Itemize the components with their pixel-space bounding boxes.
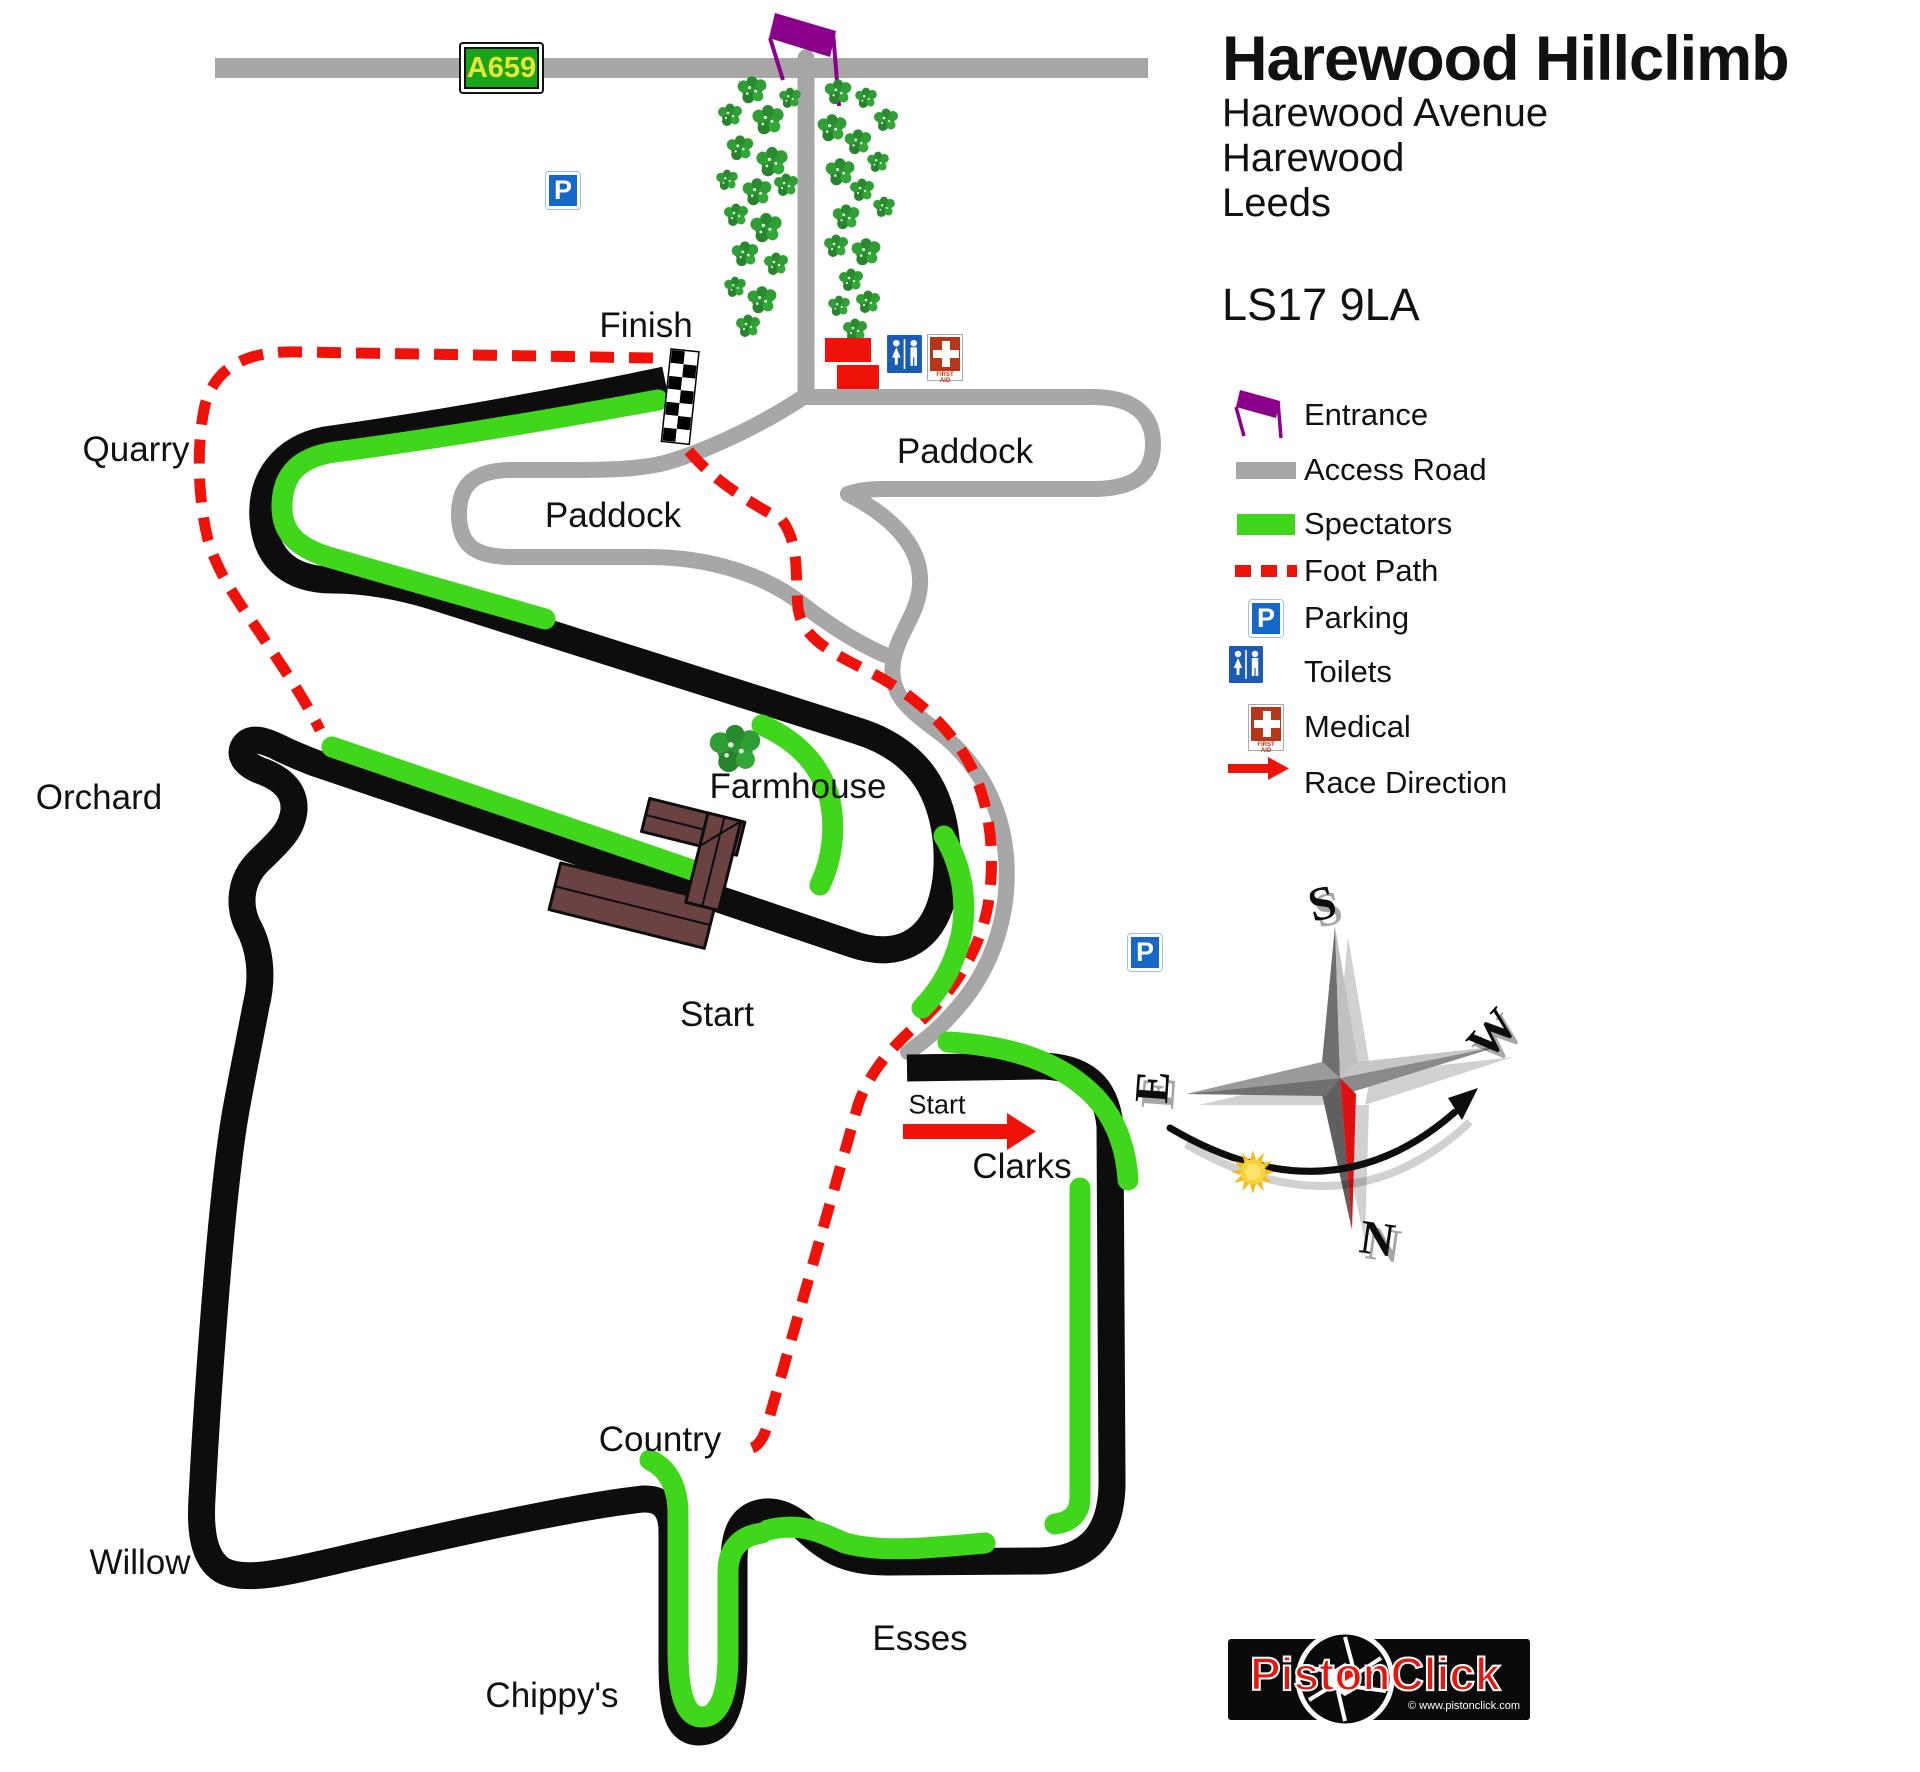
legend-item-toilets: Toilets xyxy=(1228,645,1648,699)
label-esses: Esses xyxy=(872,1619,967,1659)
foot-path-icon xyxy=(1228,565,1304,577)
legend-item-access-road: Access Road xyxy=(1228,443,1648,497)
legend-item-race-direction: Race Direction xyxy=(1228,756,1648,810)
logo-wordmark: PistonClick xyxy=(1250,1647,1501,1701)
legend-label: Toilets xyxy=(1304,654,1392,690)
logo-url: © www.pistonclick.com xyxy=(1408,1700,1520,1712)
compass-rose: S E W N S E W N xyxy=(1125,875,1534,1274)
spectators-icon xyxy=(1228,514,1304,535)
legend-item-foot-path: Foot Path xyxy=(1228,544,1648,598)
postcode: LS17 9LA xyxy=(1222,279,1789,331)
paddock-buildings xyxy=(825,338,879,389)
legend-item-spectators: Spectators xyxy=(1228,497,1648,551)
finish-line-checkered-flag xyxy=(661,349,699,444)
address-line-1: Harewood Avenue xyxy=(1222,91,1789,136)
page-title: Harewood Hillclimb xyxy=(1222,28,1789,91)
parking-icon: P xyxy=(1228,600,1304,637)
label-quarry: Quarry xyxy=(83,430,190,470)
access-road-icon xyxy=(1228,462,1304,479)
svg-text:E: E xyxy=(1125,1069,1180,1105)
label-clarks: Clarks xyxy=(972,1147,1071,1187)
legend-label: Medical xyxy=(1304,709,1411,745)
legend-item-medical: FIRSTAID Medical xyxy=(1228,700,1648,754)
medical-icon: FIRSTAID xyxy=(1228,704,1304,751)
label-willow: Willow xyxy=(89,1543,190,1583)
track-path xyxy=(201,380,1112,1732)
legend-item-entrance: Entrance xyxy=(1228,388,1648,442)
label-start-line: Start xyxy=(908,1090,965,1121)
harewood-hillclimb-map: S E W N S E W N Harewood Hillclimb Harew… xyxy=(0,0,1920,1772)
road-sign-a659: A659 xyxy=(461,44,542,92)
address-line-3: Leeds xyxy=(1222,181,1789,226)
svg-text:W: W xyxy=(1457,998,1529,1069)
label-start: Start xyxy=(680,995,754,1035)
medical-icon: FIRSTAID xyxy=(927,334,963,381)
parking-icon: P xyxy=(1128,934,1162,971)
svg-text:S: S xyxy=(1303,875,1342,933)
label-chippys: Chippy's xyxy=(485,1676,618,1716)
legend-label: Entrance xyxy=(1304,397,1428,433)
label-paddock-left: Paddock xyxy=(545,496,681,536)
label-finish: Finish xyxy=(599,306,692,346)
legend-label: Spectators xyxy=(1304,506,1452,542)
legend-label: Foot Path xyxy=(1304,553,1438,589)
title-block: Harewood Hillclimb Harewood Avenue Harew… xyxy=(1222,28,1789,331)
label-orchard: Orchard xyxy=(36,778,162,818)
label-paddock-right: Paddock xyxy=(897,432,1033,472)
label-farmhouse: Farmhouse xyxy=(709,767,886,807)
parking-icon: P xyxy=(546,172,580,209)
legend-item-parking: P Parking xyxy=(1228,591,1648,645)
legend-label: Access Road xyxy=(1304,452,1487,488)
legend-label: Race Direction xyxy=(1304,765,1507,801)
label-country: Country xyxy=(599,1420,722,1460)
address-line-2: Harewood xyxy=(1222,136,1789,181)
pistonclick-logo: PistonClick © www.pistonclick.com xyxy=(1228,1639,1530,1720)
legend-label: Parking xyxy=(1304,600,1409,636)
